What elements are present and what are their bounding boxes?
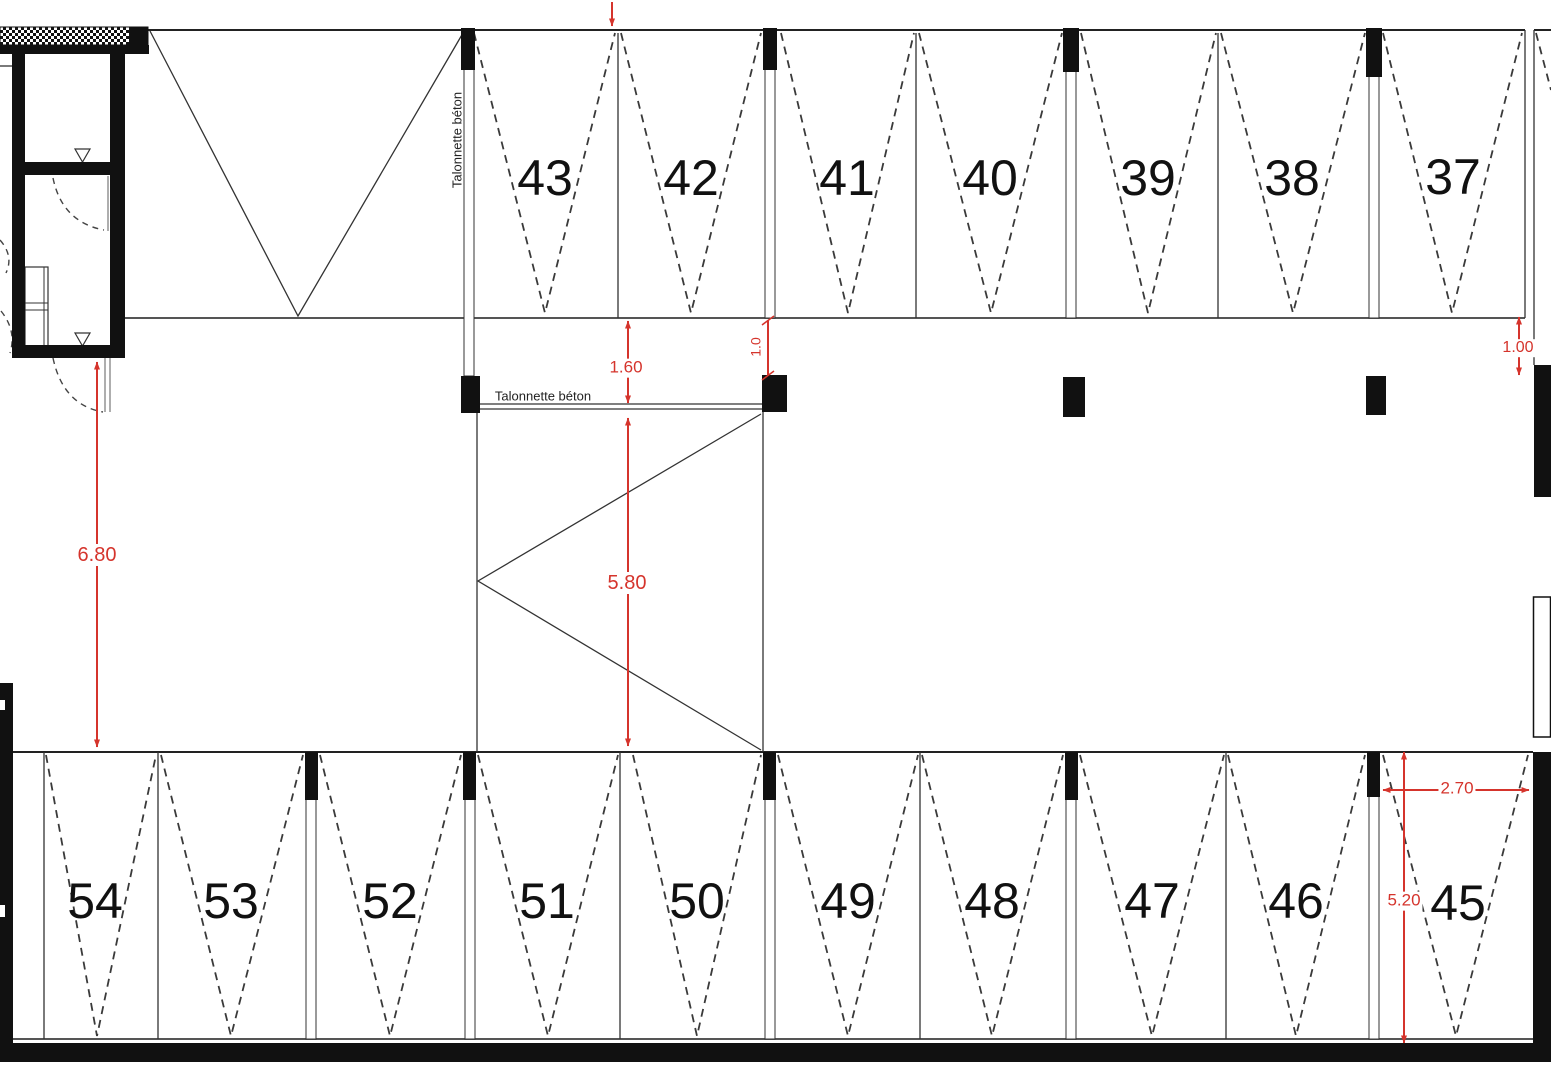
door-arc-room bbox=[53, 178, 104, 230]
dimension-label-1-00: 1.00 bbox=[1500, 339, 1535, 357]
column-bottom-52-51 bbox=[463, 752, 476, 800]
dimension-label-1-60: 1.60 bbox=[607, 359, 644, 378]
space-number-37: 37 bbox=[1425, 152, 1481, 202]
space-number-40: 40 bbox=[962, 153, 1018, 203]
room-divider-wall bbox=[12, 162, 110, 175]
room-left-wall bbox=[12, 45, 25, 358]
bottom-exterior-wall bbox=[0, 1043, 1551, 1062]
column-bottom-50-49 bbox=[763, 752, 776, 800]
space-number-53: 53 bbox=[203, 876, 259, 926]
column-bottom-46-45 bbox=[1367, 752, 1380, 797]
talonnette-vertical-casing bbox=[464, 31, 474, 376]
right-mid-block bbox=[1534, 365, 1551, 497]
left-lower-wall bbox=[0, 683, 13, 1062]
column-bottom-53-52 bbox=[305, 752, 318, 800]
talonnette-beton-label-vertical: Talonnette béton bbox=[451, 91, 464, 189]
column-top-43 bbox=[461, 28, 475, 70]
talonnette-beton-label-horizontal: Talonnette béton bbox=[494, 390, 592, 403]
room-right-wall bbox=[110, 45, 125, 358]
parking-bay-markings bbox=[46, 33, 1551, 1036]
exterior-wall-hatched bbox=[0, 27, 148, 45]
door-direction-triangle-lower bbox=[75, 333, 90, 346]
room-fixtures bbox=[25, 149, 90, 350]
column-top-40-39 bbox=[1063, 28, 1079, 72]
space-number-45: 45 bbox=[1430, 878, 1486, 928]
column-top-42-41 bbox=[763, 28, 777, 70]
space-number-50: 50 bbox=[669, 876, 725, 926]
column-mid-stub-2 bbox=[1366, 376, 1386, 415]
space-number-42: 42 bbox=[663, 153, 719, 203]
door-direction-triangle-upper bbox=[75, 149, 90, 162]
space-number-38: 38 bbox=[1264, 153, 1320, 203]
left-wall-notch-2 bbox=[0, 905, 5, 917]
space-number-48: 48 bbox=[964, 876, 1020, 926]
room-bottom-wall bbox=[12, 345, 125, 358]
space-number-47: 47 bbox=[1124, 876, 1180, 926]
space-number-54: 54 bbox=[67, 876, 123, 926]
dimension-label-5-20: 5.20 bbox=[1385, 892, 1422, 911]
column-bottom-48-47 bbox=[1065, 752, 1078, 800]
column-mid-left bbox=[461, 376, 480, 413]
parking-floor-plan: 43 42 41 40 39 38 37 54 53 52 51 50 49 4… bbox=[0, 0, 1551, 1080]
space-number-39: 39 bbox=[1120, 153, 1176, 203]
space-number-41: 41 bbox=[819, 153, 875, 203]
dimension-label-5-80: 5.80 bbox=[606, 572, 649, 594]
cabinet-fixture bbox=[25, 267, 48, 350]
column-mid-right bbox=[762, 375, 787, 412]
column-mid-stub-1 bbox=[1063, 377, 1085, 417]
space-number-49: 49 bbox=[820, 876, 876, 926]
left-wall-notch-1 bbox=[0, 700, 5, 710]
door-arc-left-edge-mid bbox=[0, 240, 9, 273]
ramp-v-marking bbox=[150, 31, 463, 316]
space-number-46: 46 bbox=[1268, 876, 1324, 926]
space-number-43: 43 bbox=[517, 153, 573, 203]
door-arc-below-room bbox=[53, 358, 103, 412]
space-number-51: 51 bbox=[519, 876, 575, 926]
column-top-38-37 bbox=[1366, 28, 1382, 77]
casing-42-41 bbox=[765, 31, 775, 318]
dimension-label-6-80: 6.80 bbox=[76, 544, 119, 566]
door-arc-left-edge-low bbox=[1, 311, 12, 353]
right-structure-opening bbox=[1534, 597, 1551, 737]
dimension-label-1-0: 1.0 bbox=[748, 336, 763, 357]
space-number-52: 52 bbox=[362, 876, 418, 926]
bay-marking-partial-right bbox=[1536, 33, 1551, 90]
dimension-label-2-70: 2.70 bbox=[1438, 780, 1475, 799]
right-lower-wall bbox=[1533, 752, 1551, 1062]
casing-40-39 bbox=[1066, 31, 1076, 318]
